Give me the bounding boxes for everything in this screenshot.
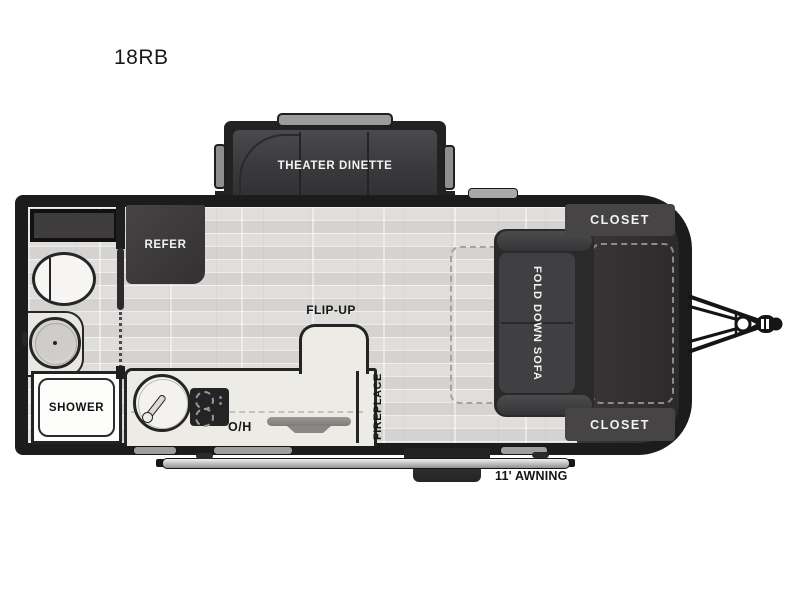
fireplace-label: FIREPLACE [372,372,390,442]
cooktop-icon [190,388,229,426]
bed-footprint-dashed [591,243,674,404]
fold-down-sofa-label: FOLD DOWN SOFA [517,253,557,393]
kitchen-faucet-knob-icon [142,412,153,423]
slideout-handle-right-icon [443,145,455,190]
awning-bar [162,458,570,469]
awning-bracket [532,452,549,458]
hitch-icon [686,288,786,360]
overhead-label: O/H [228,420,252,434]
bathroom-pocket-door [117,248,124,310]
sink-drain-dot [53,341,57,345]
closet-bottom: CLOSET [565,408,675,441]
bathroom-door-swing-dots [119,312,122,368]
floorplan-model-title: 18RB [114,46,169,70]
shower-pan: SHOWER [38,378,115,437]
bathroom-cabinet [30,209,118,242]
bathroom-cabinet-inner [34,213,114,238]
shower-label: SHOWER [49,402,104,414]
bottom-wall-window-icon [133,446,177,455]
counter-cover-icon [267,417,351,426]
theater-dinette-label: THEATER DINETTE [233,160,437,172]
bathroom-sink-icon [29,317,81,369]
flip-up-counter [299,324,369,374]
flip-up-label: FLIP-UP [295,303,367,317]
refrigerator: REFER [126,205,205,284]
bathroom-faucet-icon [22,332,27,346]
knob-dot [219,402,222,405]
slideout-handle-left-icon [214,144,226,189]
awning-label: 11' AWNING [495,469,568,483]
burner-icon [195,408,214,427]
toilet-tank-line [49,258,51,300]
slideout-window-icon [277,113,393,127]
awning-bracket [196,453,213,459]
closet-top: CLOSET [565,204,675,236]
toilet-icon [32,252,96,306]
shower-stall: SHOWER [31,371,122,444]
closet-top-label: CLOSET [590,213,650,227]
bottom-wall-window-icon [213,446,293,455]
refer-label: REFER [145,239,187,251]
fireplace-divider [356,371,359,443]
closet-bottom-label: CLOSET [590,418,650,432]
top-wall-window-icon [468,188,518,199]
bathroom-wall-upper [116,207,125,249]
knob-dot [219,396,222,399]
